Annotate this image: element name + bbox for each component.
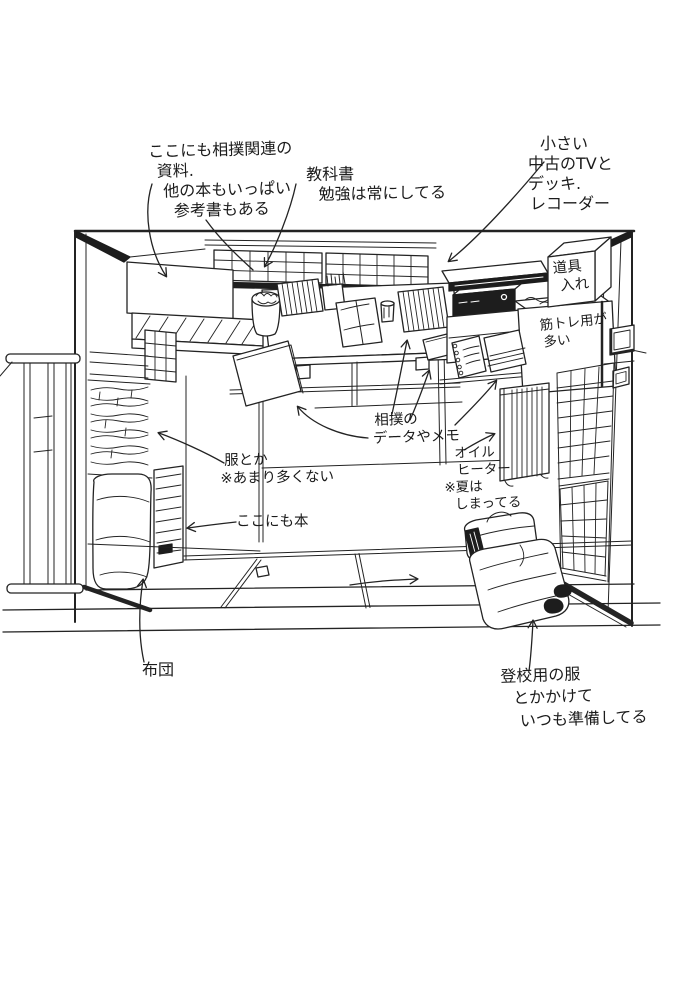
book-stack: [277, 279, 323, 316]
annotation-sumo-materials: ここにも相撲関連の 資料. 他の本もいっぱい 参考書もある: [148, 138, 294, 222]
book-stack: [398, 287, 449, 332]
room-sketch-page: ここにも相撲関連の 資料. 他の本もいっぱい 参考書もある 教科書 勉強は常にし…: [0, 0, 698, 988]
label-tool-box: 道具 入れ: [552, 257, 590, 296]
annotation-line: 入れ: [560, 275, 590, 296]
annotation-line: 教科書: [306, 163, 446, 185]
left-closet: [88, 262, 263, 589]
annotation-line: ここにも相撲関連の: [148, 138, 292, 162]
annotation-line: レコーダー: [530, 194, 613, 214]
annotation-line: いつも準備してる: [520, 706, 648, 733]
annotation-sumo-memo: 相撲の データやメモ: [372, 409, 460, 448]
annotation-textbooks: 教科書 勉強は常にしてる: [306, 163, 446, 205]
floor-item: [256, 566, 269, 577]
school-bag-and-clothes: [465, 512, 571, 629]
annotation-line: 勉強は常にしてる: [318, 183, 446, 205]
annotation-line: しまってる: [455, 494, 522, 513]
folded-uniform: [470, 539, 569, 629]
annotation-clothes: 服とか ※あまり多くない: [220, 450, 334, 488]
drinking-glass: [381, 301, 394, 322]
spiral-notebook: [452, 336, 486, 378]
annotation-line: 他の本もいっぱい: [163, 178, 293, 201]
shoji-door: [557, 363, 614, 584]
annotation-line: ヒーター: [457, 460, 521, 479]
annotation-line: ※あまり多くない: [220, 468, 334, 488]
annotation-line: 布団: [142, 660, 174, 680]
paper-stack: [484, 330, 526, 372]
annotation-oil-heater: オイル ヒーター ※夏は しまってる: [443, 443, 522, 513]
annotation-line: 中古のTVと: [528, 154, 613, 174]
annotation-line: ここにも本: [236, 513, 309, 531]
annotation-tv-deck: 小さい 中古のTVと デッキ. レコーダー: [528, 134, 613, 214]
annotation-futon: 布団: [142, 660, 174, 680]
annotation-line: 服とか: [224, 450, 334, 470]
annotation-line: 小さい: [540, 134, 613, 154]
annotation-muscle-training: 筋トレ用が 多い: [539, 311, 610, 352]
annotation-line: デッキ.: [528, 174, 613, 194]
open-notebook: [336, 298, 382, 347]
clothes-rack: [0, 354, 83, 593]
annotation-school-clothes: 登校用の服 とかかけて いつも準備してる: [500, 661, 648, 733]
trash-can: [252, 292, 280, 336]
annotation-books-here: ここにも本: [236, 513, 309, 531]
annotation-line: 参考書もある: [174, 198, 294, 221]
